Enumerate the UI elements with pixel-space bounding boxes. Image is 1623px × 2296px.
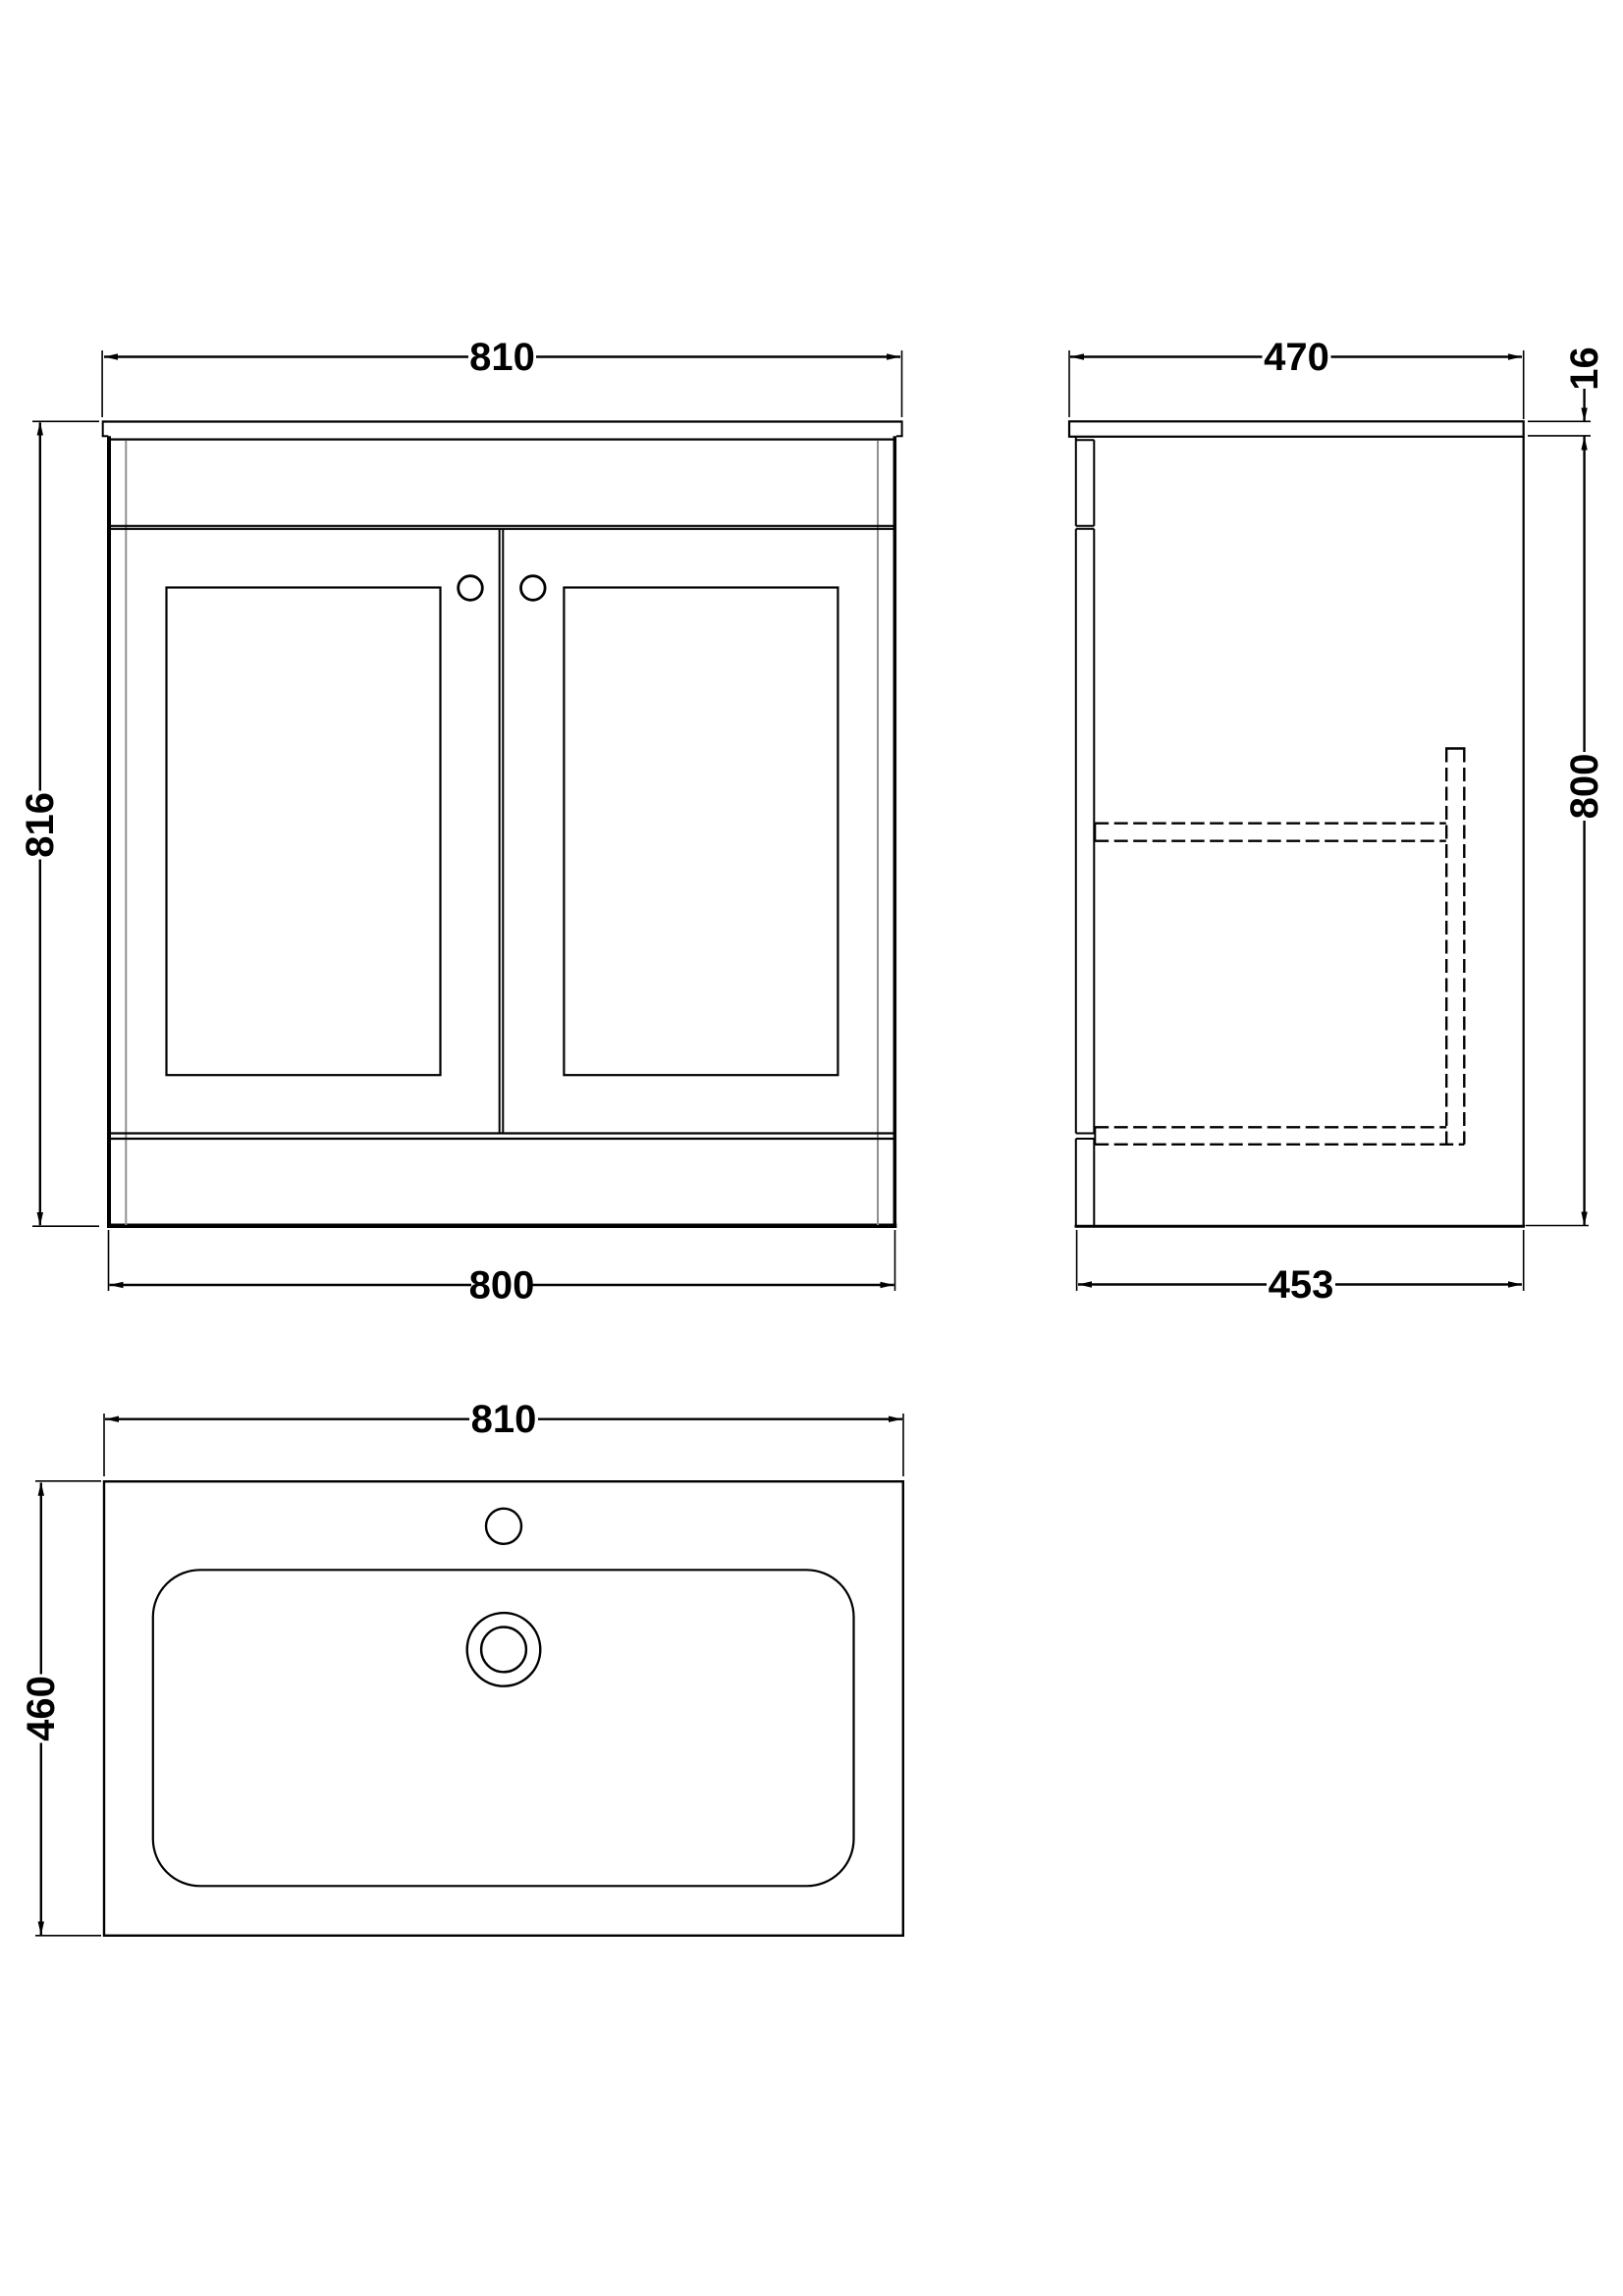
svg-text:470: 470: [1264, 336, 1329, 379]
svg-text:810: 810: [471, 1398, 537, 1441]
svg-text:816: 816: [19, 792, 62, 858]
svg-text:453: 453: [1269, 1263, 1334, 1307]
svg-text:800: 800: [1563, 754, 1606, 820]
svg-text:810: 810: [469, 336, 535, 379]
svg-text:800: 800: [469, 1263, 535, 1307]
svg-text:16: 16: [1563, 347, 1606, 391]
svg-text:460: 460: [20, 1676, 63, 1741]
